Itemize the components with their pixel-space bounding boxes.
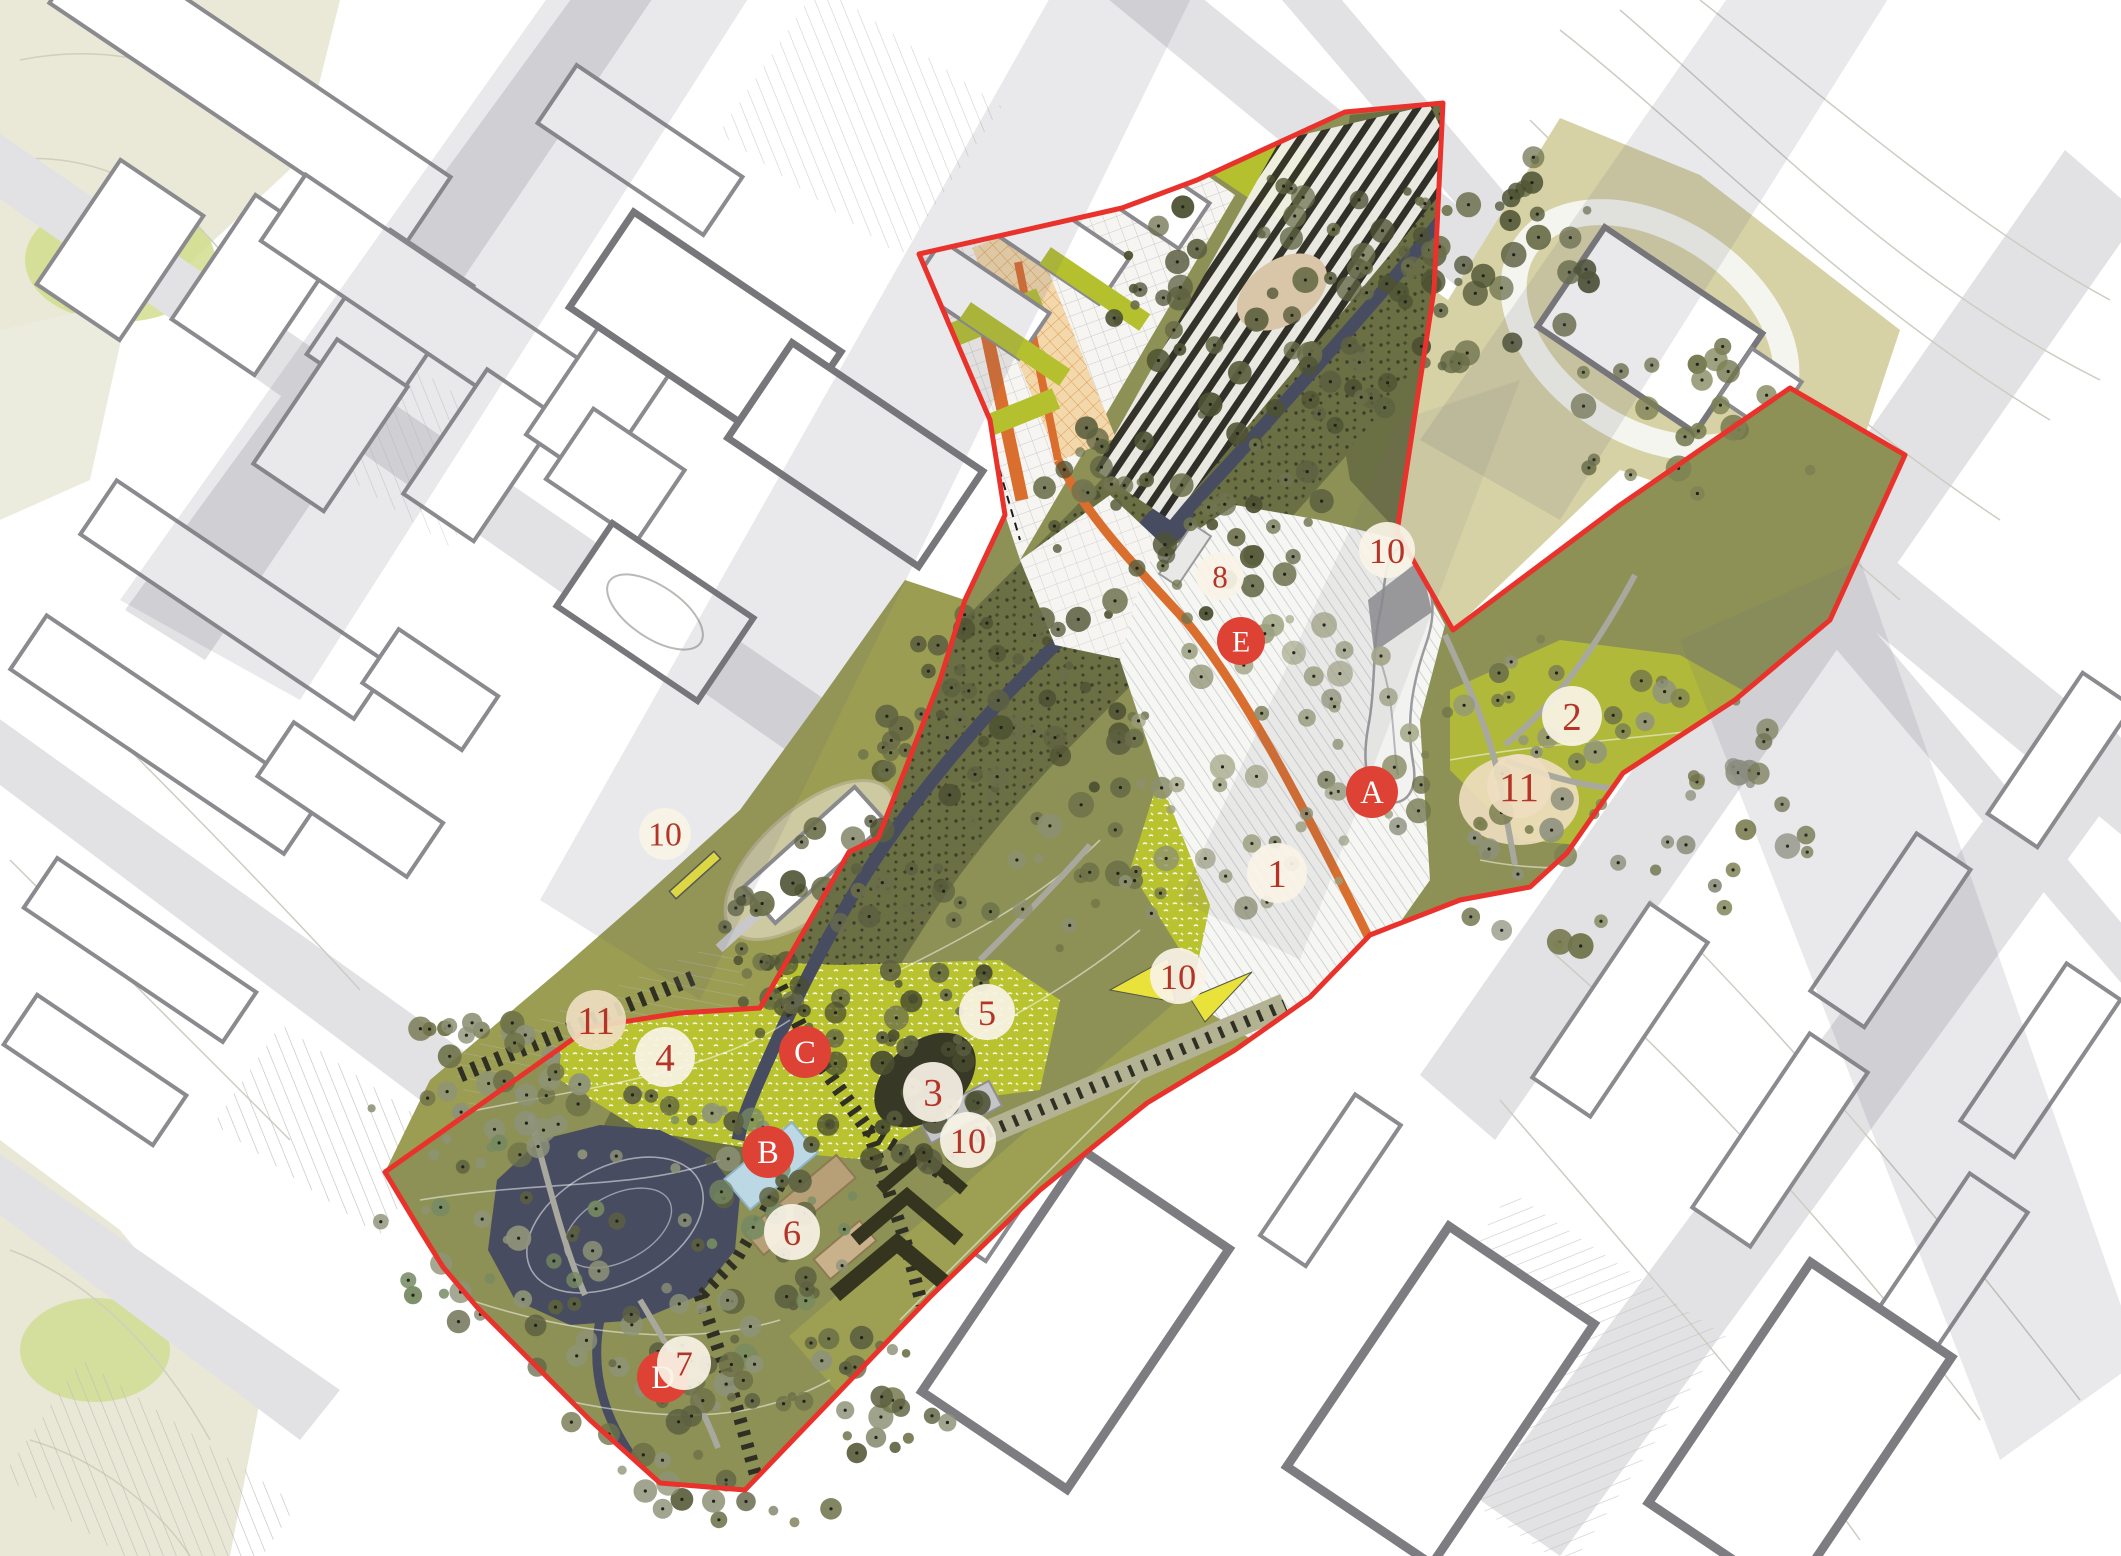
marker-label: 1: [1267, 853, 1287, 896]
marker-10-13: 10: [1359, 522, 1415, 578]
marker-label: E: [1232, 626, 1250, 659]
marker-label: B: [757, 1135, 779, 1171]
marker-label: 10: [1369, 531, 1405, 571]
marker-4-8: 4: [635, 1027, 695, 1087]
marker-7-11: 7: [657, 1336, 711, 1390]
marker-10-16: 10: [639, 808, 691, 860]
marker-C: C: [779, 1026, 831, 1078]
marker-label: A: [1360, 775, 1384, 811]
plan-canvas: ABCDE12345678101010101111: [0, 0, 2121, 1556]
marker-B: B: [742, 1126, 794, 1178]
marker-label: 6: [783, 1213, 801, 1253]
marker-A: A: [1346, 766, 1398, 818]
marker-11-17: 11: [1487, 754, 1551, 818]
marker-10-14: 10: [1150, 948, 1206, 1004]
marker-label: 8: [1212, 560, 1228, 595]
master-plan-map: ABCDE12345678101010101111: [0, 0, 2121, 1556]
marker-label: 7: [675, 1345, 693, 1384]
marker-label: 5: [978, 993, 996, 1033]
marker-label: 3: [923, 1072, 943, 1115]
marker-label: 10: [950, 1121, 986, 1161]
marker-label: 11: [577, 1000, 615, 1043]
marker-label: C: [794, 1035, 816, 1071]
marker-label: 4: [655, 1037, 675, 1080]
marker-2-6: 2: [1542, 686, 1602, 746]
marker-3-7: 3: [903, 1062, 963, 1122]
marker-5-9: 5: [959, 984, 1015, 1040]
marker-label: 10: [1160, 957, 1196, 997]
marker-10-15: 10: [940, 1112, 996, 1168]
marker-E: E: [1217, 617, 1265, 665]
marker-label: 10: [648, 817, 682, 854]
marker-8-12: 8: [1196, 552, 1244, 600]
marker-6-10: 6: [764, 1204, 820, 1260]
marker-label: 11: [1499, 764, 1539, 810]
marker-label: 2: [1562, 696, 1582, 739]
marker-1-5: 1: [1247, 843, 1307, 903]
marker-11-18: 11: [566, 990, 626, 1050]
